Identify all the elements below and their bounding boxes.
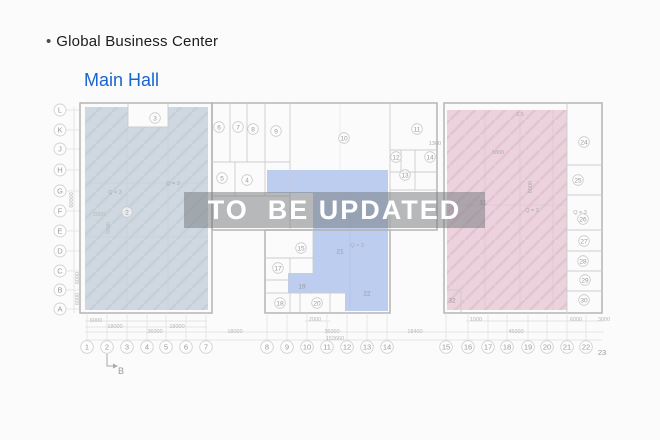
- dimension-label: 2000: [309, 317, 321, 323]
- dimension-label: 18000: [227, 329, 242, 335]
- dimension-label: 3000: [598, 317, 610, 323]
- left-dimension-label: 5000: [106, 222, 112, 234]
- room-number-label: 2: [125, 209, 129, 216]
- grid-row-label: B: [57, 286, 62, 295]
- grid-col-label: 10: [303, 343, 311, 352]
- section-marker-label: B: [118, 366, 124, 376]
- room-number-label: 19: [298, 283, 306, 290]
- grid-col-label: 19: [524, 343, 532, 352]
- left-dimension-label: 2000: [93, 212, 105, 218]
- room-number-label: 24: [580, 139, 588, 146]
- dimension-label: 153660: [326, 336, 344, 342]
- grid-row-label: H: [57, 166, 62, 175]
- room-number-label: 6: [217, 124, 221, 131]
- grid-col-labels: 1234567891011121314151617181920212223: [81, 313, 606, 357]
- grid-col-label-23: 23: [598, 348, 606, 357]
- room-number-label: 3: [153, 115, 157, 122]
- grid-row-label: K: [57, 126, 62, 135]
- room-number-label: 25: [574, 177, 582, 184]
- plan-annotation: 2.5: [516, 112, 524, 118]
- room-number-label: 10: [340, 135, 348, 142]
- room-number-label: 28: [579, 258, 587, 265]
- grid-row-label: C: [57, 267, 63, 276]
- plan-annotation: Q = 3: [350, 243, 364, 249]
- plan-annotation: Q = 3: [525, 208, 539, 214]
- grid-col-label: 3: [125, 343, 129, 352]
- room-number-label: 32: [448, 297, 456, 304]
- dimension-label: 18000: [107, 324, 122, 330]
- grid-row-label: J: [58, 145, 62, 154]
- room-number-label: 15: [297, 245, 305, 252]
- section-marker: B: [107, 354, 124, 376]
- room-number-label: 8: [251, 126, 255, 133]
- grid-col-label: 20: [543, 343, 551, 352]
- grid-col-label: 2: [105, 343, 109, 352]
- grid-col-label: 7: [204, 343, 208, 352]
- dimension-label: 45000: [508, 329, 523, 335]
- dimension-label: 1000: [470, 317, 482, 323]
- grid-col-label: 21: [563, 343, 571, 352]
- left-dimension-label: 6000: [75, 293, 81, 305]
- left-dimension-label: 60000: [69, 192, 75, 207]
- grid-col-label: 17: [484, 343, 492, 352]
- room-number-label: 21: [336, 248, 344, 255]
- grid-col-label: 13: [363, 343, 371, 352]
- grid-col-label: 14: [383, 343, 391, 352]
- plan-annotation: 1800: [492, 150, 504, 156]
- room-number-label: 4: [245, 177, 249, 184]
- room-number-label: 26: [579, 216, 587, 223]
- room-number-label: 12: [392, 154, 400, 161]
- grid-row-label: L: [58, 106, 62, 115]
- grid-row-label: D: [57, 247, 63, 256]
- grid-row-label: E: [57, 227, 62, 236]
- plan-annotation: 1300: [429, 141, 441, 147]
- dimension-label: 18400: [407, 329, 422, 335]
- grid-row-label: A: [57, 305, 62, 314]
- plan-annotation: Q = 3: [166, 181, 180, 187]
- grid-col-label: 4: [145, 343, 149, 352]
- room-number-label: 30: [580, 297, 588, 304]
- watermark-band: TO BE UPDATED: [184, 192, 485, 228]
- grid-col-label: 5: [164, 343, 168, 352]
- room-number-label: 9: [274, 128, 278, 135]
- room-number-label: 17: [274, 265, 282, 272]
- room-number-label: 27: [580, 238, 588, 245]
- room-number-label: 18: [276, 300, 284, 307]
- room-number-label: 29: [581, 277, 589, 284]
- room-number-label: 5: [220, 175, 224, 182]
- dimension-label: 36000: [324, 329, 339, 335]
- grid-row-label: G: [57, 187, 63, 196]
- grid-col-label: 16: [464, 343, 472, 352]
- grid-col-label: 22: [582, 343, 590, 352]
- left-dimension-label: 6000: [75, 272, 81, 284]
- dimension-label: 36000: [147, 329, 162, 335]
- room-number-label: 20: [313, 300, 321, 307]
- room-number-label: 11: [414, 126, 421, 133]
- grid-col-label: 6: [184, 343, 188, 352]
- dimension-label: 18000: [169, 324, 184, 330]
- grid-col-label: 1: [85, 343, 89, 352]
- plan-annotation: 6000: [528, 181, 534, 193]
- grid-col-label: 9: [285, 343, 289, 352]
- dimension-label: 6000: [570, 317, 582, 323]
- slide: • Global Business Center Main Hall: [0, 0, 660, 440]
- plan-annotation: Q = 3: [573, 210, 587, 216]
- grid-col-label: 15: [442, 343, 450, 352]
- room-number-label: 14: [426, 154, 434, 161]
- grid-col-label: 11: [323, 343, 331, 352]
- grid-col-label: 8: [265, 343, 269, 352]
- room-number-label: 13: [401, 172, 409, 179]
- grid-col-label: 18: [503, 343, 511, 352]
- room-number-label: 7: [236, 124, 240, 131]
- plan-annotation: Q = 3: [108, 190, 122, 196]
- watermark-text: TO BE UPDATED: [208, 195, 462, 226]
- grid-row-label: F: [58, 207, 63, 216]
- room-number-label: 22: [363, 290, 371, 297]
- dimension-label: 6000: [90, 318, 102, 324]
- grid-col-label: 12: [343, 343, 351, 352]
